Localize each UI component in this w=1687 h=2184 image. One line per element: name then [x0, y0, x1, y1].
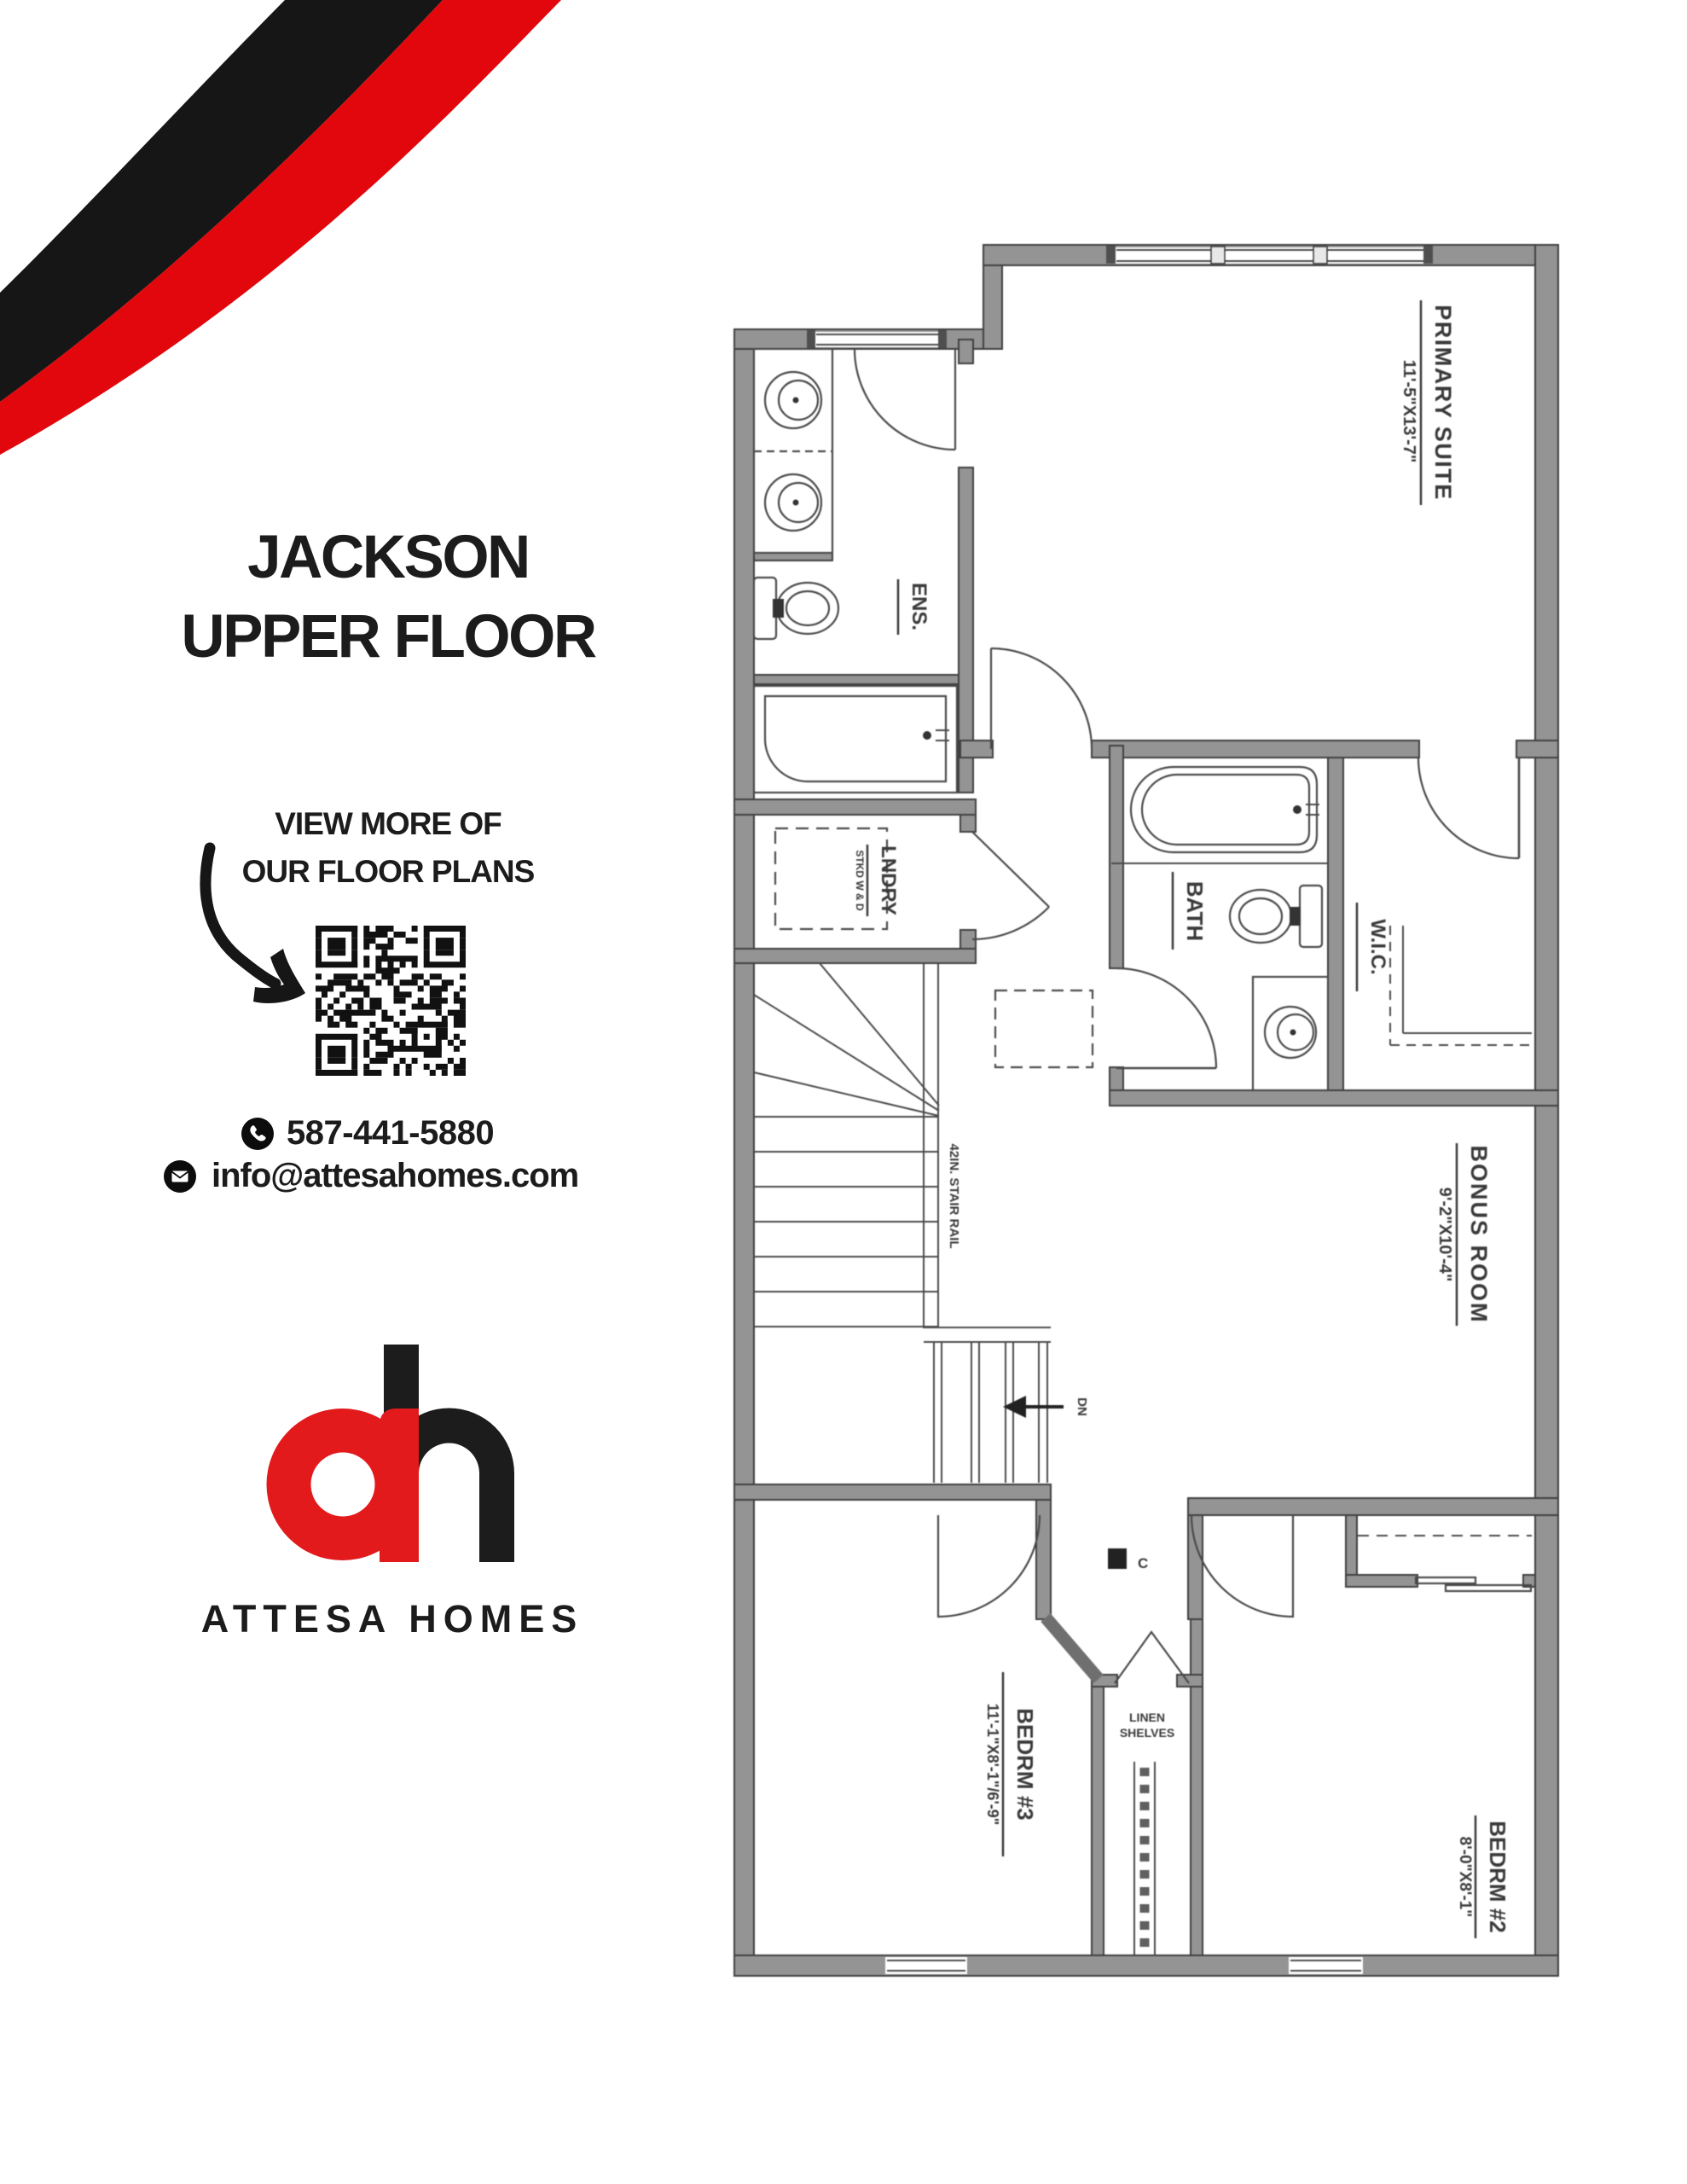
svg-text:9'-2"X10'-4": 9'-2"X10'-4": [1435, 1188, 1454, 1282]
svg-text:42IN. STAIR RAIL: 42IN. STAIR RAIL: [947, 1143, 961, 1248]
svg-text:BEDRM #3: BEDRM #3: [1012, 1708, 1038, 1820]
svg-text:W.I.C.: W.I.C.: [1366, 919, 1389, 974]
svg-text:SHELVES: SHELVES: [1120, 1726, 1174, 1740]
svg-text:STKD W & D: STKD W & D: [854, 850, 866, 911]
svg-text:C: C: [1138, 1555, 1148, 1571]
svg-text:LINEN: LINEN: [1129, 1711, 1165, 1724]
svg-text:BEDRM #2: BEDRM #2: [1485, 1821, 1510, 1932]
svg-text:LNDRY: LNDRY: [877, 845, 900, 915]
svg-text:BONUS ROOM: BONUS ROOM: [1466, 1146, 1492, 1324]
svg-text:11'-1"X8'-1"/6'-9": 11'-1"X8'-1"/6'-9": [984, 1704, 1001, 1826]
svg-text:BATH: BATH: [1182, 881, 1208, 941]
svg-text:PRIMARY SUITE: PRIMARY SUITE: [1430, 305, 1456, 501]
svg-text:ENS.: ENS.: [907, 583, 930, 630]
svg-text:DN: DN: [1075, 1397, 1089, 1416]
svg-text:11'-5"X13'-7": 11'-5"X13'-7": [1400, 360, 1418, 463]
svg-text:8'-0"X8'-1": 8'-0"X8'-1": [1456, 1837, 1474, 1918]
